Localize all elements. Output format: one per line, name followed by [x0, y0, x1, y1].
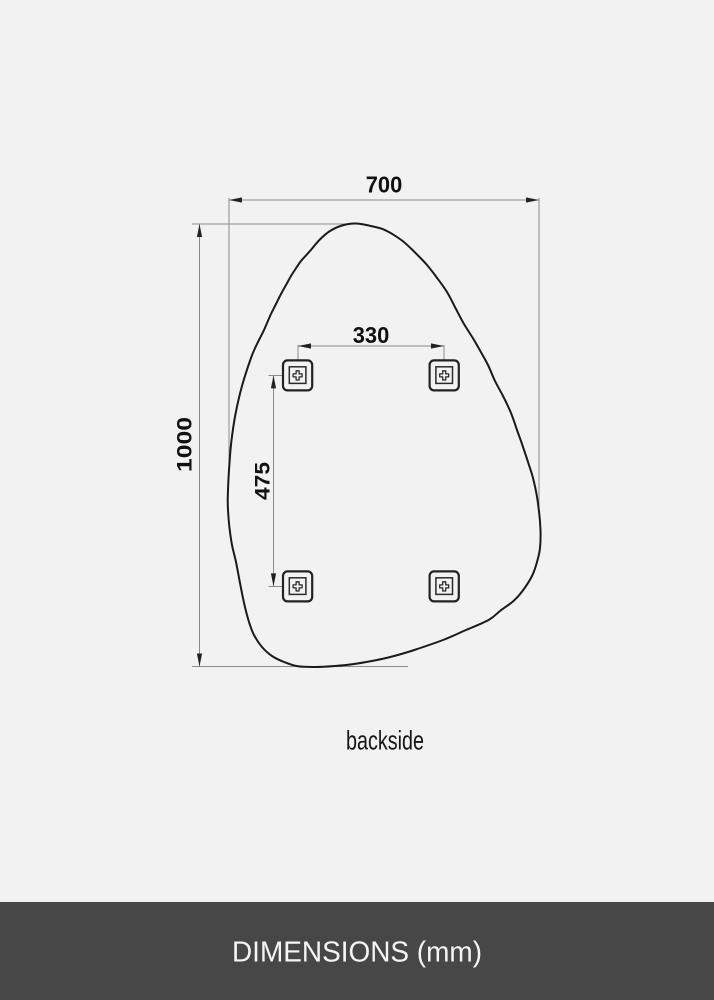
svg-text:475: 475: [251, 462, 275, 500]
svg-text:DIMENSIONS (mm): DIMENSIONS (mm): [232, 937, 482, 969]
svg-text:330: 330: [353, 322, 390, 348]
svg-text:1000: 1000: [173, 417, 197, 472]
svg-text:700: 700: [366, 172, 403, 198]
svg-text:backside: backside: [346, 726, 424, 756]
